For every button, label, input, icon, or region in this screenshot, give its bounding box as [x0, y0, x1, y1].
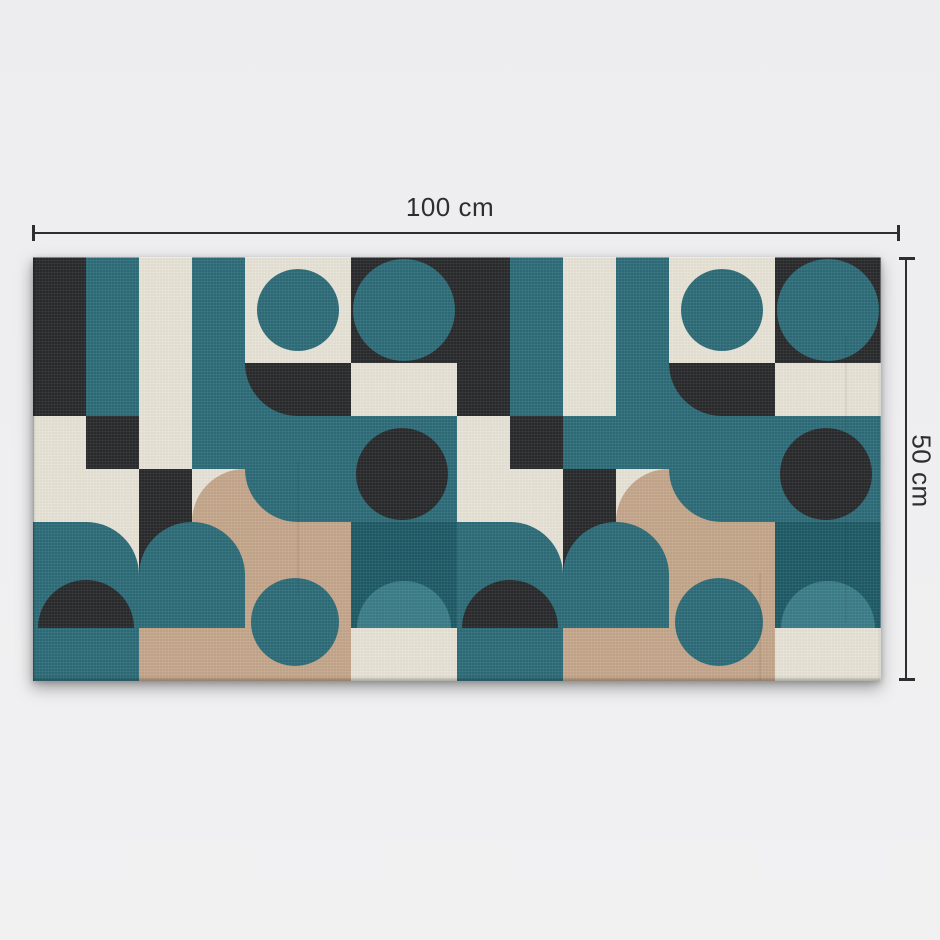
- geometric-artwork: [33, 257, 881, 681]
- height-dimension-tick-top: [899, 257, 915, 260]
- height-dimension-tick-bottom: [899, 678, 915, 681]
- pattern-module-left: [33, 257, 457, 681]
- height-dimension-label: 50 cm: [906, 434, 937, 507]
- pattern-variation-square: [563, 416, 616, 469]
- pattern-module-right: [457, 257, 881, 681]
- width-dimension-label: 100 cm: [330, 192, 570, 223]
- canvas-print: [33, 257, 881, 681]
- product-dimension-diagram: 100 cm 50 cm: [0, 0, 940, 940]
- width-dimension-tick-right: [897, 225, 900, 241]
- width-dimension-tick-left: [32, 225, 35, 241]
- height-dimension-line: [905, 258, 907, 680]
- width-dimension-line: [33, 232, 899, 234]
